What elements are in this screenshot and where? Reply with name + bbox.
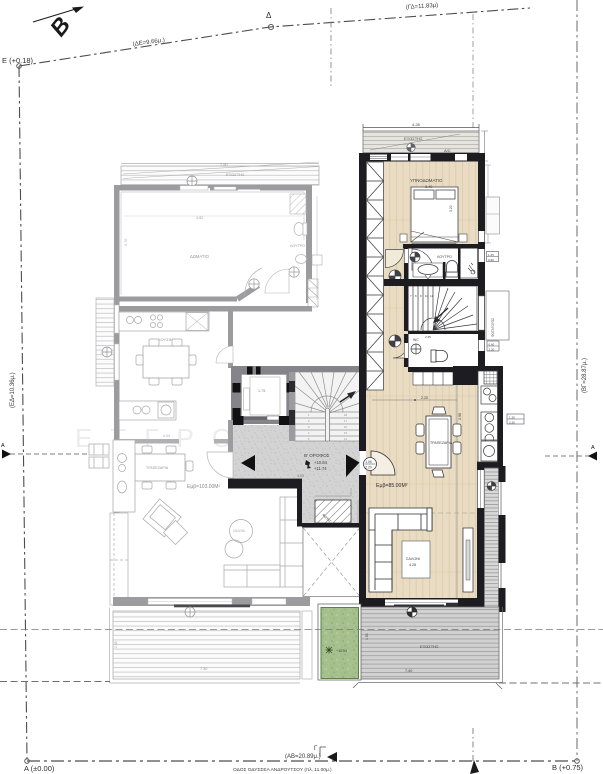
svg-text:ΣΑΛΟΝΙ: ΣΑΛΟΝΙ: [406, 557, 420, 561]
svg-text:WC: WC: [413, 338, 419, 342]
svg-text:1.50: 1.50: [365, 633, 369, 640]
svg-text:ΛΟΥΤΡΟ: ΛΟΥΤΡΟ: [290, 244, 305, 248]
svg-text:3.98: 3.98: [458, 413, 462, 420]
svg-text:11: 11: [430, 294, 433, 298]
svg-text:(ΒΓ=28.87μ.): (ΒΓ=28.87μ.): [582, 358, 588, 393]
svg-text:3.20: 3.20: [449, 205, 453, 212]
svg-text:ΕΞΩΣΤΗΣ: ΕΞΩΣΤΗΣ: [404, 136, 423, 141]
svg-text:1.06: 1.06: [365, 460, 372, 464]
svg-text:(ΑΒ=20.89μ.): (ΑΒ=20.89μ.): [285, 754, 321, 760]
svg-text:+11.74: +11.74: [314, 466, 327, 471]
svg-text:ΥΠΝΟΔΩΜΑΤΙΟ: ΥΠΝΟΔΩΜΑΤΙΟ: [410, 178, 443, 183]
svg-text:2.20: 2.20: [365, 465, 372, 469]
svg-text:4.28: 4.28: [412, 122, 421, 127]
svg-text:(ΕΔ=10.36μ.): (ΕΔ=10.36μ.): [10, 372, 16, 408]
svg-text:E (+0.18): E (+0.18): [2, 56, 34, 65]
svg-text:2.35: 2.35: [425, 335, 431, 339]
svg-text:7.40: 7.40: [405, 669, 412, 673]
svg-text:7.80: 7.80: [220, 162, 229, 167]
svg-text:+10.84: +10.84: [314, 460, 328, 465]
svg-text:2.45: 2.45: [114, 641, 118, 648]
svg-text:Eμβ=103.00M²: Eμβ=103.00M²: [187, 484, 220, 490]
svg-text:ΟΔΟΣ ΟΔΥΣΣΕΑ ΑΝΔΡΟΥΤΣΟΥ (πλ. 1: ΟΔΟΣ ΟΔΥΣΣΕΑ ΑΝΔΡΟΥΤΣΟΥ (πλ. 11.00μ.): [233, 767, 332, 773]
svg-text:4.82: 4.82: [196, 216, 203, 220]
svg-text:ΤΡΑΠΕΖΑΡΙΑ: ΤΡΑΠΕΖΑΡΙΑ: [430, 441, 453, 445]
svg-text:2.20: 2.20: [421, 396, 428, 400]
svg-text:4.03: 4.03: [297, 474, 304, 478]
svg-text:1.75: 1.75: [258, 389, 265, 393]
svg-text:Β' ΟΡΟΦΟΣ: Β' ΟΡΟΦΟΣ: [304, 453, 330, 458]
svg-text:0.60: 0.60: [489, 342, 495, 346]
svg-text:0.90: 0.90: [488, 258, 494, 262]
svg-text:4.43: 4.43: [163, 434, 170, 438]
svg-text:7.30: 7.30: [200, 667, 207, 671]
svg-text:ΔΩΜΑΤΙΟ: ΔΩΜΑΤΙΟ: [190, 254, 210, 259]
svg-text:B (+0.75): B (+0.75): [552, 763, 584, 772]
svg-text:1.25: 1.25: [488, 253, 494, 257]
svg-text:A/C: A/C: [444, 148, 451, 153]
svg-text:A: A: [591, 445, 595, 451]
svg-text:Eμβ=85.00M²: Eμβ=85.00M²: [376, 483, 408, 489]
svg-text:2.20: 2.20: [489, 347, 495, 351]
svg-text:+10.04: +10.04: [336, 649, 347, 653]
svg-text:ΕΞΩΣΤΗΣ: ΕΞΩΣΤΗΣ: [226, 172, 245, 177]
svg-text:10: 10: [425, 294, 429, 298]
svg-text:A (±0.00): A (±0.00): [24, 764, 55, 773]
svg-text:A: A: [1, 443, 5, 449]
svg-text:2.20: 2.20: [509, 420, 515, 424]
svg-text:4.28: 4.28: [409, 563, 416, 567]
svg-text:4.70: 4.70: [124, 239, 128, 246]
svg-text:ΛΟΥΤΡΟ: ΛΟΥΤΡΟ: [437, 255, 452, 259]
svg-text:ΦΩΤΑΓΩΓΟΣ: ΦΩΤΑΓΩΓΟΣ: [491, 318, 495, 337]
svg-text:Δ: Δ: [266, 11, 272, 20]
svg-text:ΤΡΑΠΕΖΑΡΙΑ: ΤΡΑΠΕΖΑΡΙΑ: [146, 466, 169, 470]
svg-text:1.25: 1.25: [509, 415, 515, 419]
svg-text:3.40: 3.40: [425, 185, 432, 189]
svg-text:ΕΞΩΣΤΗΣ: ΕΞΩΣΤΗΣ: [420, 644, 439, 649]
svg-text:ΣΑΛΟΝΙ: ΣΑΛΟΝΙ: [233, 529, 245, 533]
